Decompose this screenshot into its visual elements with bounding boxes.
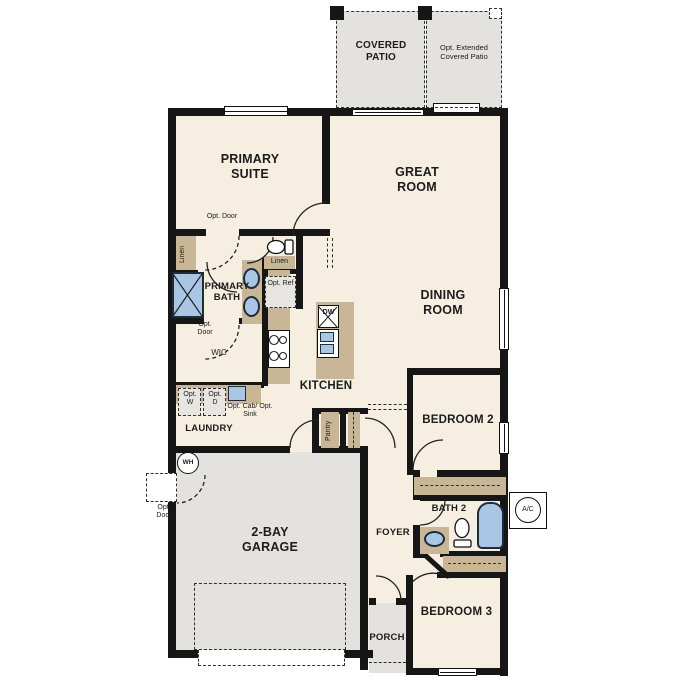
room-label-wic: WIC	[203, 348, 235, 357]
door-swing-arc	[413, 440, 443, 470]
linen-label: Linen	[264, 258, 295, 266]
room-label-great-room: GREAT ROOM	[387, 165, 447, 195]
opt-door-label: Opt. Door	[201, 213, 243, 221]
room-label-laundry: LAUNDRY	[179, 423, 239, 434]
toilet-icon	[454, 519, 471, 548]
door-swing-arc	[376, 576, 401, 601]
room-label-porch: PORCH	[365, 632, 409, 643]
door-swing-arc	[290, 420, 318, 448]
stove-burners-icon	[270, 336, 287, 361]
door-swing-arc	[293, 203, 326, 236]
pantry-label: Pantry	[325, 415, 337, 447]
plan-linework	[0, 0, 687, 687]
room-label-bedroom2: BEDROOM 2	[412, 414, 504, 428]
opt-door-swing	[177, 475, 205, 503]
room-label-garage: 2-BAY GARAGE	[235, 525, 305, 555]
opt-door-swing	[205, 236, 239, 270]
room-label-bath2: BATH 2	[426, 503, 472, 514]
room-label-ext-patio: Opt. Extended Covered Patio	[428, 44, 500, 62]
door-swing-arc	[365, 418, 395, 448]
room-label-kitchen: KITCHEN	[295, 380, 357, 394]
opt-ref-label: Opt. Ref	[267, 280, 294, 288]
opt-cab-sink-label: Opt. Cab/ Opt. Sink	[225, 403, 275, 420]
floor-plan: WH A/C	[0, 0, 687, 687]
dishwasher-label: DW	[318, 309, 339, 317]
opt-door-label: Opt. Door	[151, 504, 177, 521]
linen-label: Linen	[179, 238, 192, 270]
toilet-icon	[268, 240, 294, 254]
room-label-covered-patio: COVERED PATIO	[351, 40, 411, 64]
opt-dryer-label: Opt. D	[205, 391, 225, 408]
opt-door-label: Opt. Door	[192, 321, 218, 338]
room-label-bedroom3: BEDROOM 3	[409, 606, 504, 620]
opt-washer-label: Opt. W	[180, 391, 200, 408]
shower-icon	[173, 274, 202, 316]
room-label-dining-room: DINING ROOM	[413, 288, 473, 318]
room-label-primary-suite: PRIMARY SUITE	[210, 152, 290, 182]
room-label-primary-bath: PRIMARY BATH	[204, 281, 250, 303]
room-label-foyer: FOYER	[371, 527, 415, 538]
